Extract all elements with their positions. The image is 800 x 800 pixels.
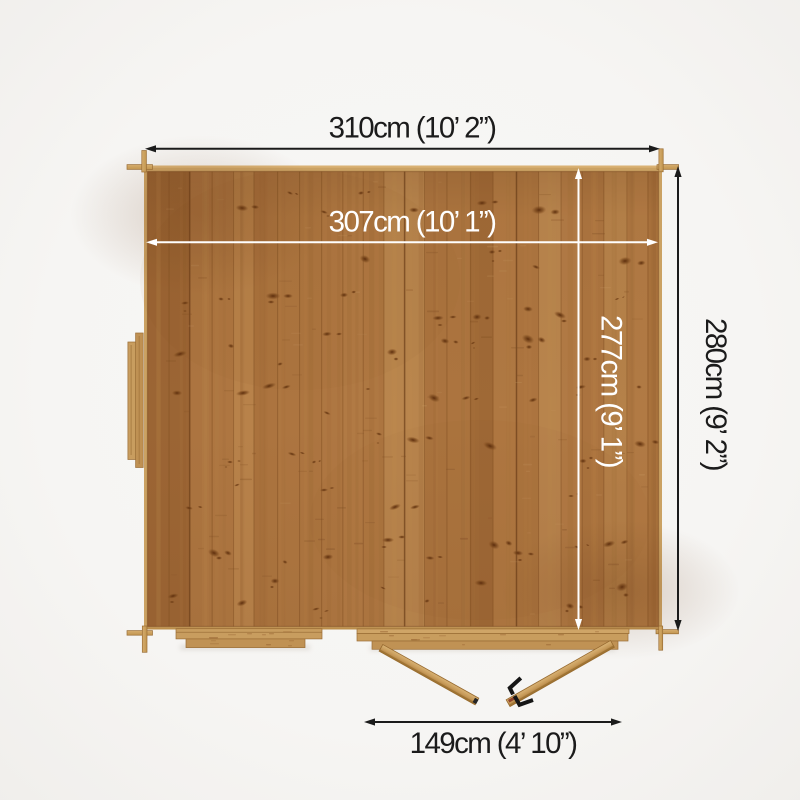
svg-text:310cm (10’ 2”): 310cm (10’ 2”) <box>329 112 496 145</box>
svg-text:307cm (10’ 1”): 307cm (10’ 1”) <box>329 206 496 239</box>
svg-text:149cm (4’ 10”): 149cm (4’ 10”) <box>410 727 577 760</box>
svg-text:277cm (9’ 1”): 277cm (9’ 1”) <box>595 315 628 467</box>
svg-text:280cm (9’ 2”): 280cm (9’ 2”) <box>699 318 732 470</box>
